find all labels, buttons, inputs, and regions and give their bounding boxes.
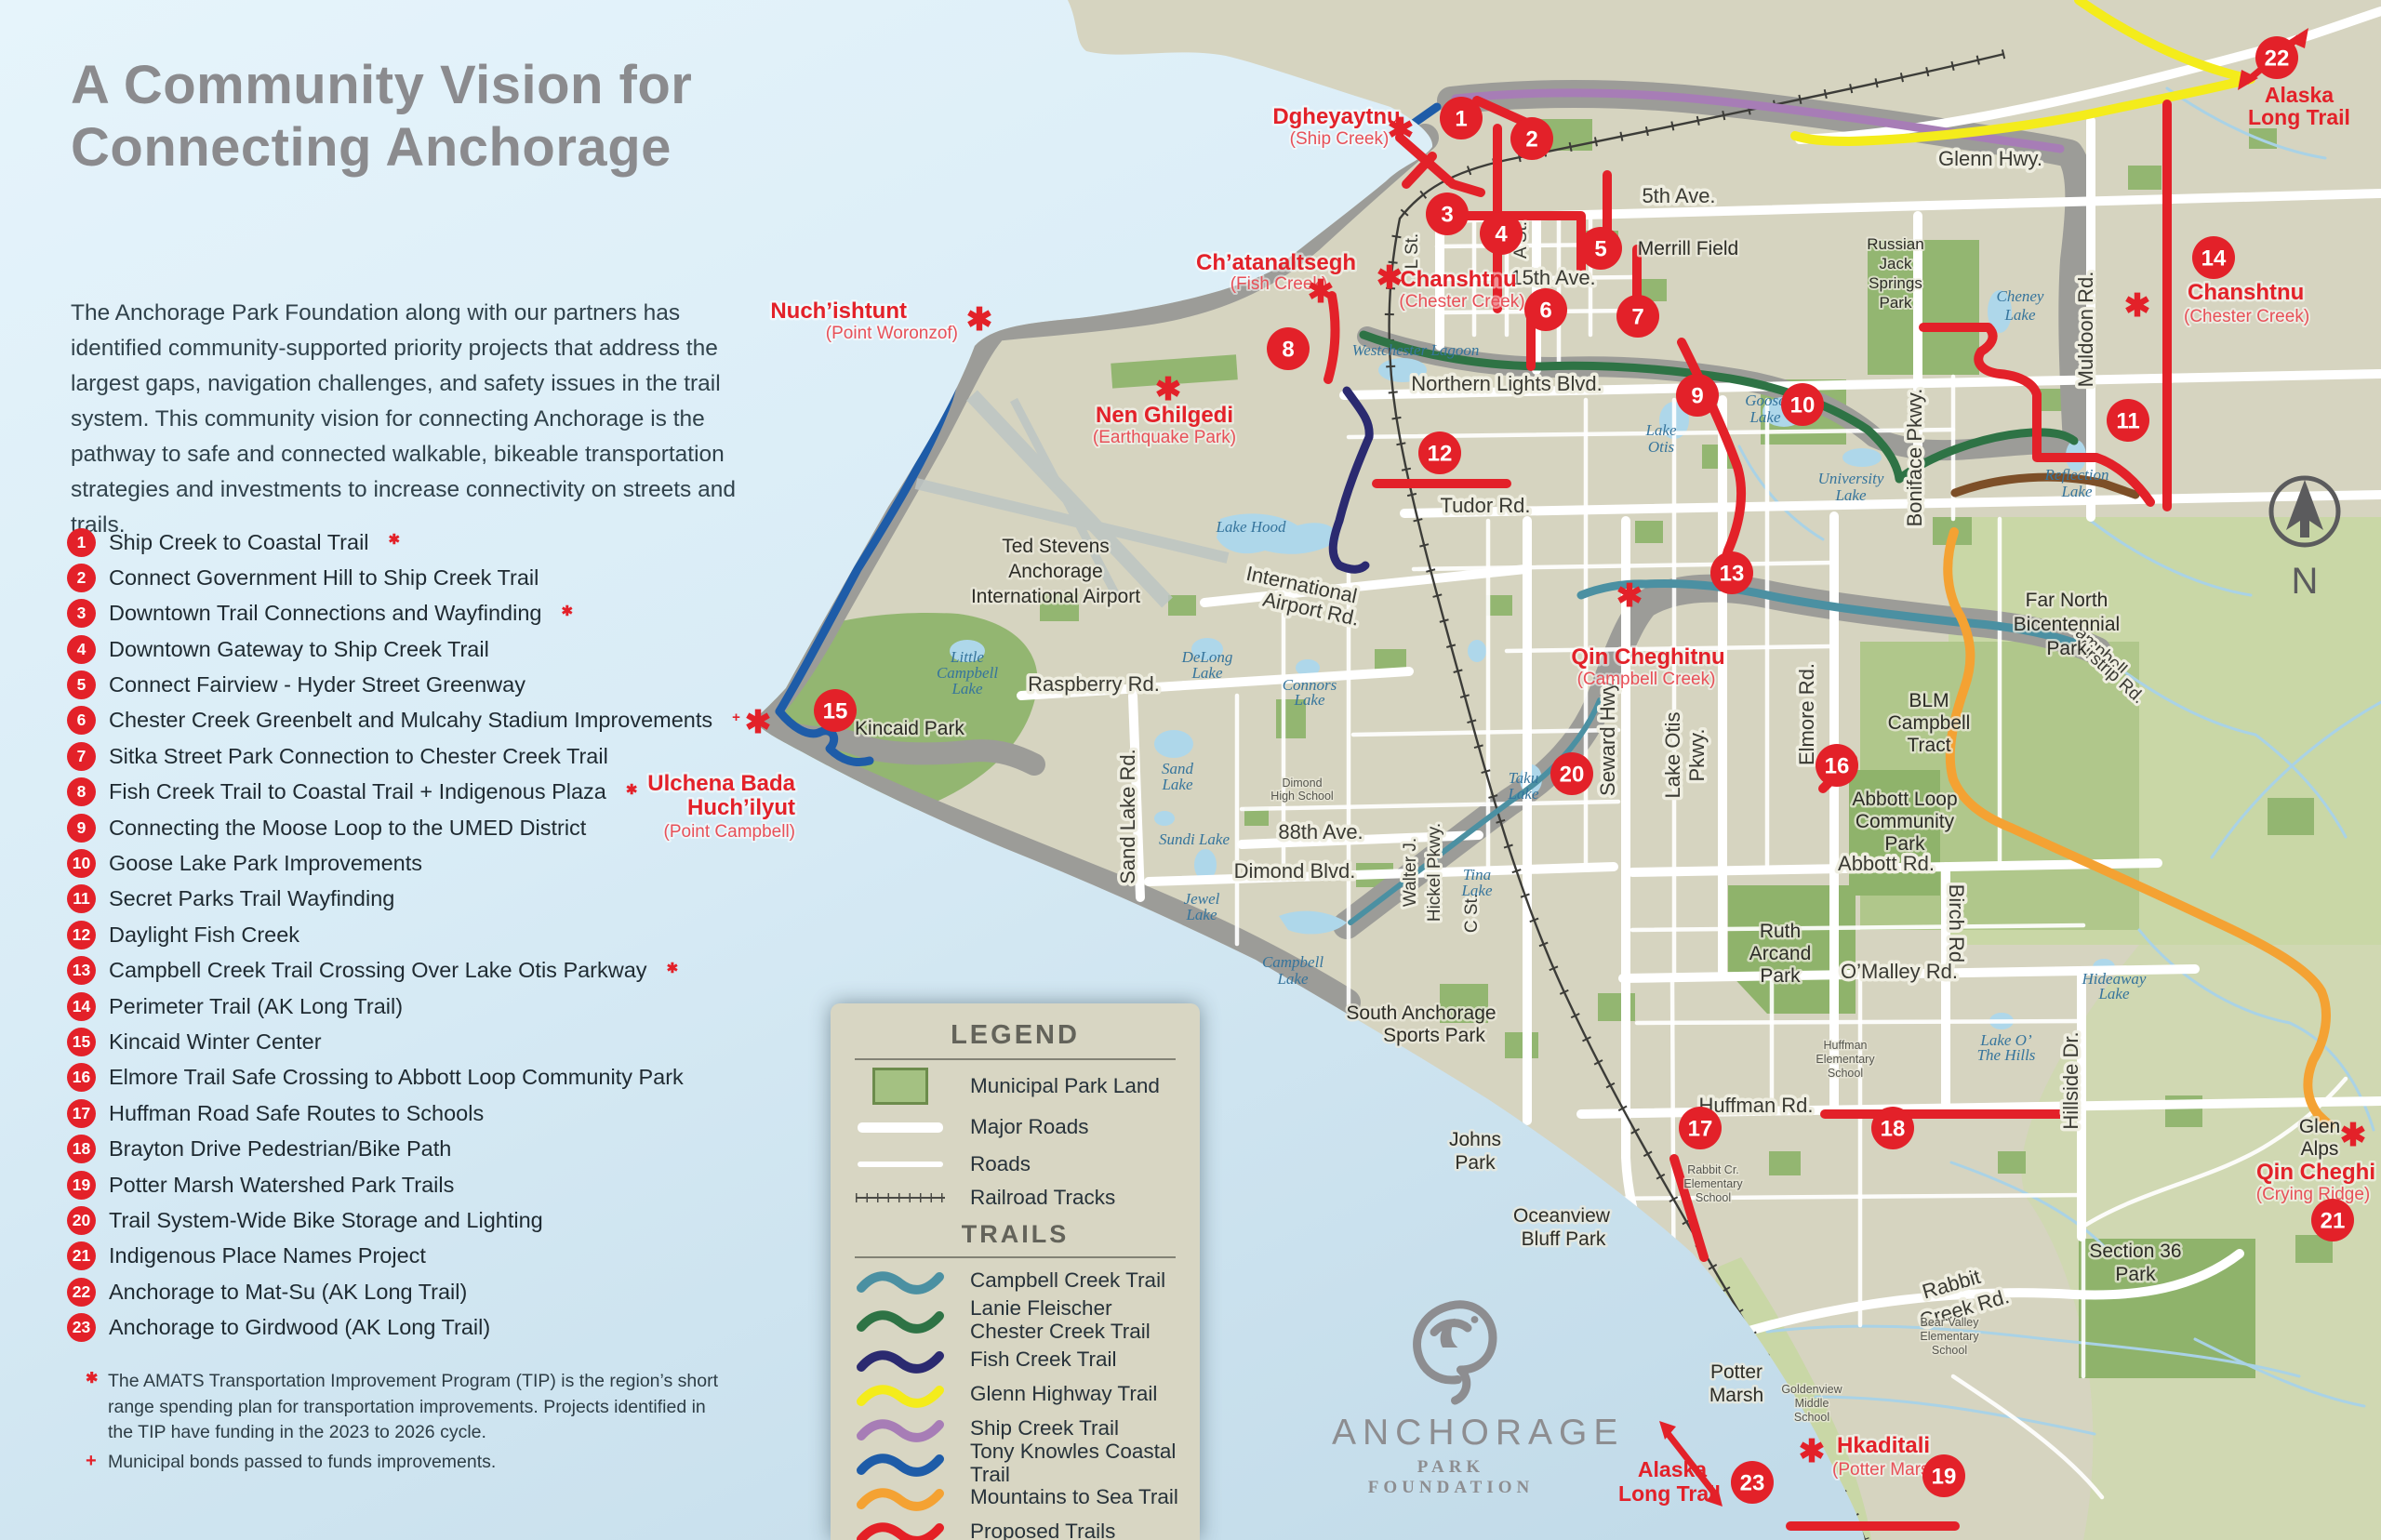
svg-text:Goldenview: Goldenview — [1781, 1383, 1842, 1396]
project-number-badge: 5 — [67, 670, 96, 699]
svg-text:Lake: Lake — [2060, 483, 2093, 500]
trail-swatch — [831, 1415, 970, 1443]
project-list-item: 14Perimeter Trail (AK Long Trail) — [67, 992, 740, 1020]
svg-text:6: 6 — [1539, 299, 1551, 324]
map-marker: 17 — [1679, 1107, 1722, 1149]
map-marker: 19 — [1922, 1454, 1965, 1497]
svg-text:3: 3 — [1441, 203, 1453, 228]
map-marker: 10 — [1781, 383, 1824, 426]
legend-trail-item: Glenn Highway Trail — [831, 1377, 1200, 1412]
svg-text:Campbell: Campbell — [1262, 953, 1324, 971]
svg-text:Ch’atanaltsegh: Ch’atanaltsegh — [1196, 250, 1356, 275]
project-list-item: 11Secret Parks Trail Wayfinding — [67, 885, 740, 913]
svg-text:15th Ave.: 15th Ave. — [1510, 266, 1595, 289]
project-list-item: 13Campbell Creek Trail Crossing Over Lak… — [67, 957, 740, 985]
svg-text:Lake: Lake — [951, 680, 983, 697]
svg-text:Chanshtnu: Chanshtnu — [2188, 280, 2304, 305]
svg-text:18: 18 — [1881, 1117, 1906, 1142]
trail-swatch — [831, 1268, 970, 1295]
map-marker: 16 — [1816, 744, 1858, 787]
project-number-badge: 12 — [67, 921, 96, 949]
project-list-item: 22Anchorage to Mat-Su (AK Long Trail) — [67, 1278, 740, 1306]
svg-text:Sports Park: Sports Park — [1383, 1025, 1485, 1046]
project-number-badge: 6 — [67, 706, 96, 735]
map-marker: 21 — [2311, 1199, 2354, 1241]
legend-trail-item: Campbell Creek Trail — [831, 1264, 1200, 1298]
svg-text:Lake: Lake — [1749, 408, 1781, 426]
svg-text:Park: Park — [2115, 1264, 2156, 1285]
svg-text:Kincaid Park: Kincaid Park — [855, 718, 964, 739]
project-list-item: 1Ship Creek to Coastal Trail✱ — [67, 528, 740, 556]
map-marker: 8 — [1267, 327, 1310, 370]
asterisk-icon: ✱ — [1377, 260, 1403, 296]
svg-text:Middle: Middle — [1795, 1397, 1829, 1410]
svg-text:BLM: BLM — [1909, 690, 1949, 711]
svg-text:Northern Lights Blvd.: Northern Lights Blvd. — [1411, 372, 1602, 395]
svg-text:School: School — [1794, 1411, 1829, 1424]
project-number-badge: 18 — [67, 1135, 96, 1163]
svg-text:Arcand: Arcand — [1749, 943, 1812, 964]
svg-text:Glen: Glen — [2299, 1116, 2340, 1137]
svg-text:Dgheyaytnu: Dgheyaytnu — [1272, 104, 1400, 129]
svg-text:20: 20 — [1560, 763, 1585, 788]
svg-text:Sand Lake Rd.: Sand Lake Rd. — [1116, 749, 1139, 884]
railroad-swatch — [831, 1191, 970, 1204]
svg-text:5th Ave.: 5th Ave. — [1642, 184, 1715, 207]
svg-text:Lake: Lake — [1834, 486, 1867, 504]
svg-text:Lake: Lake — [1460, 882, 1493, 899]
logo-tagline: PARK FOUNDATION — [1332, 1457, 1570, 1498]
svg-text:13: 13 — [1720, 562, 1745, 587]
legend-item: Roads — [831, 1148, 1200, 1181]
project-number-badge: 9 — [67, 814, 96, 843]
project-list-item: 12Daylight Fish Creek — [67, 921, 740, 949]
map-marker: 7 — [1616, 295, 1659, 338]
project-list-item: 17Huffman Road Safe Routes to Schools — [67, 1099, 740, 1127]
legend-trail-item: Tony Knowles Coastal Trail — [831, 1446, 1200, 1480]
plus-icon: + — [86, 1448, 97, 1474]
project-list-item: 6Chester Creek Greenbelt and Mulcahy Sta… — [67, 707, 740, 735]
map-marker: 22 — [2255, 36, 2298, 79]
legend-title: LEGEND — [831, 1020, 1200, 1051]
svg-text:Hickel Pkwy.: Hickel Pkwy. — [1425, 823, 1444, 922]
svg-text:(Crying Ridge): (Crying Ridge) — [2256, 1185, 2370, 1204]
project-number-badge: 22 — [67, 1278, 96, 1307]
map-marker: 11 — [2107, 399, 2149, 442]
project-number-badge: 14 — [67, 992, 96, 1021]
trail-swatch — [831, 1307, 970, 1334]
project-number-badge: 11 — [67, 884, 96, 913]
svg-text:Elmore Rd.: Elmore Rd. — [1795, 663, 1818, 765]
svg-text:(Point Woronzof): (Point Woronzof) — [826, 324, 958, 343]
map-marker: 14 — [2192, 236, 2235, 279]
svg-text:High School: High School — [1270, 790, 1333, 803]
project-number-badge: 23 — [67, 1313, 96, 1342]
anchorage-park-foundation-logo: ANCHORAGE PARK FOUNDATION — [1332, 1294, 1570, 1498]
svg-text:23: 23 — [1740, 1471, 1765, 1496]
project-number-badge: 3 — [67, 599, 96, 628]
svg-text:Cheney: Cheney — [1997, 287, 2044, 305]
svg-text:Park: Park — [1884, 833, 1925, 855]
svg-text:Potter: Potter — [1710, 1361, 1762, 1383]
svg-text:12: 12 — [1428, 442, 1453, 467]
svg-text:(Chester Creek): (Chester Creek) — [2184, 307, 2309, 326]
poster: Glenn Hwy. 5th Ave. 15th Ave. L St. A St… — [0, 0, 2381, 1540]
svg-text:Marsh: Marsh — [1709, 1385, 1763, 1406]
svg-text:Park: Park — [1760, 965, 1801, 987]
svg-text:Merrill Field: Merrill Field — [1638, 238, 1739, 259]
project-number-badge: 4 — [67, 635, 96, 664]
svg-text:(Ship Creek): (Ship Creek) — [1290, 129, 1390, 149]
svg-text:Campbell: Campbell — [1888, 712, 1971, 734]
map-marker: 20 — [1550, 752, 1593, 795]
legend-trail-item: Fish Creek Trail — [831, 1343, 1200, 1377]
svg-text:Lake: Lake — [2097, 985, 2130, 1002]
asterisk-icon: ✱ — [1388, 113, 1415, 148]
svg-text:Dimond Blvd.: Dimond Blvd. — [1234, 859, 1356, 883]
asterisk-icon: ✱ — [2340, 1118, 2367, 1153]
svg-text:Abbott Loop: Abbott Loop — [1852, 789, 1957, 810]
svg-text:Bear Valley: Bear Valley — [1921, 1316, 1980, 1329]
svg-text:21: 21 — [2321, 1209, 2346, 1234]
svg-text:(Campbell Creek): (Campbell Creek) — [1577, 670, 1716, 689]
svg-text:International Airport: International Airport — [971, 586, 1140, 607]
svg-text:Anchorage: Anchorage — [1008, 561, 1103, 582]
trail-swatch — [831, 1381, 970, 1409]
svg-text:The Hills: The Hills — [1977, 1046, 2036, 1064]
svg-text:Park: Park — [2046, 638, 2087, 659]
info-panel: A Community Vision for Connecting Anchor… — [0, 0, 837, 1540]
svg-text:Dimond: Dimond — [1282, 777, 1322, 790]
asterisk-icon: ✱ — [2124, 288, 2151, 324]
legend-trails-title: TRAILS — [831, 1220, 1200, 1249]
svg-text:Rabbit Cr.: Rabbit Cr. — [1687, 1163, 1739, 1176]
svg-text:Sundi Lake: Sundi Lake — [1159, 830, 1230, 848]
asterisk-icon: ✱ — [966, 302, 993, 338]
svg-text:South Anchorage: South Anchorage — [1346, 1002, 1496, 1024]
svg-text:Far North: Far North — [2026, 590, 2108, 611]
svg-text:Community: Community — [1856, 811, 1955, 832]
svg-text:Tudor Rd.: Tudor Rd. — [1440, 494, 1530, 517]
svg-text:2: 2 — [1525, 127, 1537, 153]
svg-text:Qin Cheghitnu: Qin Cheghitnu — [1571, 644, 1724, 670]
project-list-item: 8Fish Creek Trail to Coastal Trail + Ind… — [67, 778, 740, 806]
project-list-item: 4Downtown Gateway to Ship Creek Trail — [67, 635, 740, 663]
raven-logo-icon — [1381, 1294, 1521, 1406]
legend: LEGEND Municipal Park Land Major Roads R… — [831, 1003, 1200, 1540]
project-number-badge: 10 — [67, 849, 96, 878]
svg-text:Park: Park — [1455, 1152, 1496, 1174]
map-marker: 2 — [1510, 117, 1553, 160]
svg-text:Lake: Lake — [1507, 785, 1539, 803]
svg-text:Seward Hwy.: Seward Hwy. — [1596, 677, 1619, 796]
svg-text:Ruth: Ruth — [1760, 921, 1801, 942]
svg-text:Alaska: Alaska — [2265, 83, 2334, 107]
svg-text:C St.: C St. — [1462, 894, 1482, 933]
major-road-swatch — [831, 1122, 970, 1133]
asterisk-icon: ✱ — [86, 1369, 98, 1390]
svg-text:Elementary: Elementary — [1683, 1177, 1743, 1190]
project-list-item: 16Elmore Trail Safe Crossing to Abbott L… — [67, 1064, 740, 1092]
map-marker: 13 — [1710, 551, 1753, 594]
footnotes: ✱The AMATS Transportation Improvement Pr… — [86, 1369, 727, 1480]
asterisk-icon: ✱ — [1799, 1434, 1826, 1469]
svg-text:School: School — [1932, 1344, 1967, 1357]
page-title: A Community Vision for Connecting Anchor… — [71, 54, 692, 179]
svg-text:Chanshtnu: Chanshtnu — [1400, 267, 1516, 292]
project-number-badge: 2 — [67, 564, 96, 592]
svg-text:N: N — [2292, 561, 2319, 602]
svg-text:Johns: Johns — [1449, 1129, 1501, 1150]
legend-trail-item: Proposed Trails — [831, 1515, 1200, 1540]
svg-text:Birch Rd.: Birch Rd. — [1945, 884, 1968, 968]
divider — [855, 1058, 1176, 1060]
asterisk-icon: ✱ — [1308, 274, 1335, 310]
svg-text:(Earthquake Park): (Earthquake Park) — [1093, 428, 1236, 447]
svg-text:22: 22 — [2265, 46, 2290, 72]
svg-text:Huffman Rd.: Huffman Rd. — [1698, 1094, 1813, 1117]
svg-text:Jack: Jack — [1880, 255, 1912, 272]
project-list-item: 5Connect Fairview - Hyder Street Greenwa… — [67, 671, 740, 699]
svg-text:Lake: Lake — [1190, 664, 1223, 682]
map-marker: 3 — [1426, 192, 1469, 235]
trail-swatch — [831, 1347, 970, 1374]
svg-text:Goose: Goose — [1745, 392, 1786, 409]
svg-text:Lake: Lake — [1161, 776, 1193, 793]
svg-text:Lake Otis: Lake Otis — [1661, 712, 1684, 799]
legend-item: Railroad Tracks — [831, 1181, 1200, 1215]
legend-trail-item: Mountains to Sea Trail — [831, 1480, 1200, 1515]
svg-text:O’Malley Rd.: O’Malley Rd. — [1841, 960, 1958, 983]
svg-text:Long Trail: Long Trail — [2248, 105, 2350, 129]
trail-swatch — [831, 1450, 970, 1478]
intro-paragraph: The Anchorage Park Foundation along with… — [71, 296, 776, 543]
project-list-item: 15Kincaid Winter Center — [67, 1028, 740, 1055]
svg-text:Lake: Lake — [1276, 970, 1309, 988]
park-swatch — [831, 1068, 970, 1105]
svg-text:(Chester Creek): (Chester Creek) — [1399, 292, 1524, 312]
svg-text:Raspberry Rd.: Raspberry Rd. — [1028, 672, 1160, 696]
project-number-badge: 21 — [67, 1241, 96, 1270]
svg-text:Oceanview: Oceanview — [1513, 1205, 1611, 1227]
svg-text:Abbott Rd.: Abbott Rd. — [1838, 852, 1935, 875]
project-list-item: 21Indigenous Place Names Project — [67, 1242, 740, 1270]
svg-text:Lake: Lake — [1644, 421, 1677, 439]
map-marker: 18 — [1871, 1107, 1914, 1149]
map-marker: 6 — [1524, 288, 1567, 331]
svg-text:16: 16 — [1825, 754, 1850, 779]
svg-text:19: 19 — [1932, 1465, 1957, 1490]
svg-text:Alps: Alps — [2301, 1138, 2339, 1160]
project-list-item: 19Potter Marsh Watershed Park Trails — [67, 1171, 740, 1199]
map-marker: 4 — [1480, 212, 1523, 255]
map-marker: 9 — [1676, 374, 1719, 417]
svg-text:Hkaditali: Hkaditali — [1837, 1433, 1930, 1458]
project-list-item: 7Sitka Street Park Connection to Chester… — [67, 742, 740, 770]
svg-text:Muldoon Rd.: Muldoon Rd. — [2074, 272, 2097, 388]
project-list-item: 10Goose Lake Park Improvements — [67, 850, 740, 878]
map-marker: 1 — [1440, 97, 1483, 139]
svg-text:Elementary: Elementary — [1816, 1053, 1875, 1066]
svg-text:Russian: Russian — [1867, 235, 1923, 253]
svg-text:88th Ave.: 88th Ave. — [1278, 820, 1363, 843]
svg-text:7: 7 — [1631, 305, 1643, 330]
svg-text:Pkwy.: Pkwy. — [1685, 728, 1709, 781]
svg-text:Qin Cheghi: Qin Cheghi — [2256, 1160, 2375, 1185]
svg-text:Bluff Park: Bluff Park — [1522, 1228, 1606, 1250]
svg-text:8: 8 — [1282, 338, 1294, 363]
svg-text:Tract: Tract — [1907, 735, 1950, 756]
project-number-badge: 15 — [67, 1028, 96, 1056]
svg-text:9: 9 — [1691, 384, 1703, 409]
svg-text:Boniface Pkwy.: Boniface Pkwy. — [1903, 389, 1926, 527]
svg-text:L St.: L St. — [1403, 233, 1422, 269]
project-number-badge: 16 — [67, 1063, 96, 1092]
project-list-item: 18Brayton Drive Pedestrian/Bike Path — [67, 1135, 740, 1163]
svg-text:Elementary: Elementary — [1920, 1330, 1979, 1343]
svg-text:University: University — [1818, 470, 1884, 487]
svg-text:10: 10 — [1790, 393, 1816, 418]
project-list: 1Ship Creek to Coastal Trail✱ 2Connect G… — [67, 528, 740, 1349]
svg-text:5: 5 — [1594, 237, 1606, 262]
svg-text:Walter J.: Walter J. — [1401, 838, 1420, 907]
svg-text:Lake: Lake — [2003, 306, 2036, 324]
svg-text:Alaska: Alaska — [1638, 1457, 1707, 1481]
svg-text:Glenn Hwy.: Glenn Hwy. — [1938, 147, 2042, 170]
svg-text:Huffman: Huffman — [1823, 1039, 1867, 1052]
svg-text:Bicentennial: Bicentennial — [2014, 614, 2120, 635]
svg-text:Otis: Otis — [1648, 438, 1675, 456]
road-swatch — [831, 1162, 970, 1167]
svg-text:1: 1 — [1455, 107, 1467, 132]
map-marker: 12 — [1418, 431, 1461, 474]
legend-item: Municipal Park Land — [831, 1066, 1200, 1107]
project-list-item: 9Connecting the Moose Loop to the UMED D… — [67, 814, 740, 842]
project-list-item: 23Anchorage to Girdwood (AK Long Trail) — [67, 1314, 740, 1342]
asterisk-icon: ✱ — [1616, 578, 1643, 614]
svg-text:Westchester Lagoon: Westchester Lagoon — [1352, 341, 1480, 359]
svg-text:17: 17 — [1688, 1117, 1713, 1142]
project-number-badge: 8 — [67, 777, 96, 806]
svg-text:Reflection: Reflection — [2044, 466, 2109, 484]
project-number-badge: 13 — [67, 956, 96, 985]
project-number-badge: 17 — [67, 1099, 96, 1128]
project-list-item: 20Trail System-Wide Bike Storage and Lig… — [67, 1206, 740, 1234]
asterisk-icon: ✱ — [1155, 372, 1182, 407]
trail-swatch — [831, 1484, 970, 1512]
svg-text:Springs: Springs — [1869, 274, 1922, 292]
svg-text:Park: Park — [1880, 294, 1912, 312]
svg-text:Lake Hood: Lake Hood — [1215, 518, 1286, 536]
svg-text:Lake: Lake — [1185, 906, 1217, 923]
project-number-badge: 1 — [67, 528, 96, 557]
svg-text:11: 11 — [2116, 409, 2139, 434]
project-number-badge: 19 — [67, 1171, 96, 1200]
project-number-badge: 7 — [67, 742, 96, 771]
svg-text:14: 14 — [2201, 246, 2227, 272]
svg-text:School: School — [1696, 1191, 1731, 1204]
map-marker: 23 — [1731, 1461, 1774, 1504]
svg-text:Lake: Lake — [1293, 691, 1325, 709]
project-number-badge: 20 — [67, 1206, 96, 1235]
svg-text:Ted Stevens: Ted Stevens — [1002, 536, 1110, 557]
svg-text:4: 4 — [1495, 222, 1508, 247]
project-list-item: 3Downtown Trail Connections and Wayfindi… — [67, 600, 740, 628]
svg-text:Long Trail: Long Trail — [1618, 1481, 1721, 1506]
svg-text:Hillside Dr.: Hillside Dr. — [2059, 1031, 2082, 1129]
logo-name: ANCHORAGE — [1332, 1413, 1570, 1454]
svg-text:Section 36: Section 36 — [2089, 1241, 2181, 1262]
legend-trail-item: Lanie FleischerChester Creek Trail — [831, 1298, 1200, 1343]
map-marker: 5 — [1579, 227, 1622, 270]
svg-text:School: School — [1828, 1067, 1863, 1080]
divider — [855, 1256, 1176, 1258]
project-list-item: 2Connect Government Hill to Ship Creek T… — [67, 564, 740, 591]
legend-item: Major Roads — [831, 1107, 1200, 1148]
trail-swatch — [831, 1519, 970, 1540]
